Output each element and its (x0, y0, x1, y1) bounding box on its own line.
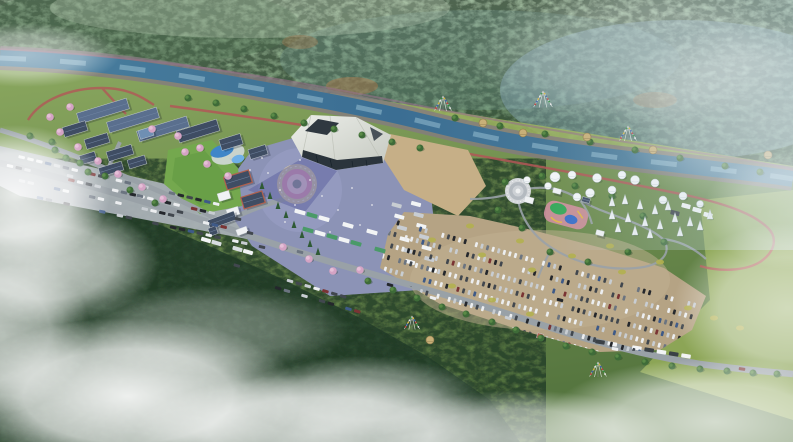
shrub (656, 260, 664, 265)
person (249, 169, 251, 171)
shrub (526, 312, 534, 317)
person (284, 221, 286, 223)
person (299, 159, 301, 161)
scene-svg (0, 0, 793, 442)
person (359, 224, 361, 226)
shrub (516, 239, 524, 244)
shrub (488, 298, 496, 303)
person (267, 172, 269, 174)
person (321, 195, 323, 197)
autumn-patch (282, 35, 318, 49)
straw-hut (519, 129, 527, 137)
aerial-site-rendering (0, 0, 793, 442)
person (279, 189, 281, 191)
shrub (478, 253, 486, 258)
person (261, 157, 263, 159)
shrub (528, 268, 536, 273)
straw-hut (479, 119, 487, 127)
shrub (448, 284, 456, 289)
shrub (428, 238, 436, 243)
person (351, 187, 353, 189)
person (371, 204, 373, 206)
shrub (466, 224, 474, 229)
person (309, 179, 311, 181)
person (294, 204, 296, 206)
person (329, 231, 331, 233)
straw-hut (426, 336, 434, 344)
cloud (240, 356, 480, 436)
shrub (568, 254, 576, 259)
person (337, 209, 339, 211)
shrub (618, 270, 626, 275)
